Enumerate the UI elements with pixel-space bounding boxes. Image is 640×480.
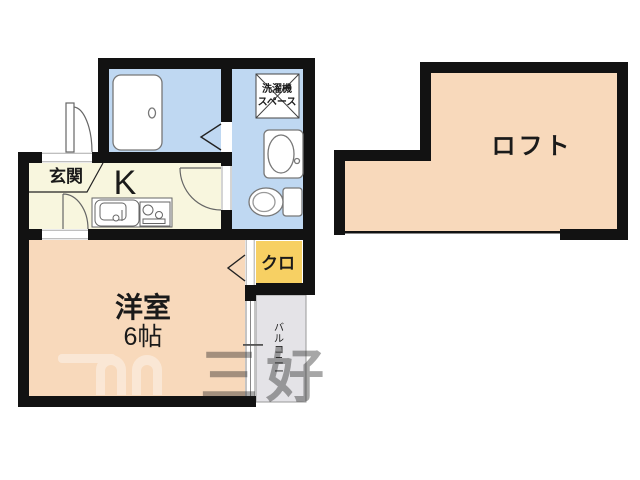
loft-wall-top xyxy=(420,62,628,73)
watermark-text: 三好 xyxy=(200,344,332,409)
wall-bath-washroom-lower xyxy=(221,210,232,229)
western-room-size-label: 6帖 xyxy=(124,323,163,351)
balcony-label: バルコニー xyxy=(274,322,284,378)
bathtub xyxy=(113,75,162,150)
loft-wall-notch xyxy=(334,150,431,161)
vanity-basin xyxy=(268,135,294,173)
entrance-door-leaf xyxy=(66,103,74,152)
wall-bath-washroom-mid xyxy=(221,152,232,166)
bathroom-door-gap xyxy=(221,122,232,152)
stove-burner-large xyxy=(143,205,153,215)
wall-window-stub xyxy=(245,285,256,301)
loft-edge-line xyxy=(340,231,562,234)
floor-plan-image: 三好 玄関 K 洗濯機 スペース クロ 洋室 6帖 ロフト バルコニー xyxy=(0,0,640,480)
vanity-sink xyxy=(264,130,303,178)
stove-burner-small xyxy=(156,212,163,219)
washer-label-line1: 洗濯機 xyxy=(262,82,292,95)
entrance-door-arc xyxy=(74,107,92,152)
toilet xyxy=(249,188,302,216)
floor-plan-svg: 三好 玄関 K 洗濯機 スペース クロ 洋室 6帖 ロフト バルコニー xyxy=(0,0,640,480)
wall-bath-bottom xyxy=(98,152,221,163)
wall-left-outer xyxy=(18,152,29,407)
kitchen-counter xyxy=(92,198,172,227)
wall-bath-washroom-upper xyxy=(221,58,232,122)
washroom-door-gap xyxy=(221,166,232,210)
wall-closet-bottom xyxy=(256,283,312,295)
wall-right-outer xyxy=(303,58,315,295)
vanity-faucet xyxy=(295,159,300,164)
sink-faucet xyxy=(113,215,119,221)
entrance-label: 玄関 xyxy=(49,166,83,186)
wall-bath-left xyxy=(98,58,109,163)
loft-wall-left-upper xyxy=(420,62,431,161)
loft-wall-right xyxy=(617,62,628,240)
washer-label-line2: スペース xyxy=(258,96,297,108)
loft-wall-left-lower xyxy=(334,150,345,235)
wall-top xyxy=(98,58,315,69)
western-room-label: 洋室 xyxy=(115,291,171,323)
bathtub-drain xyxy=(149,108,156,118)
loft-label: ロフト xyxy=(492,133,573,160)
washing-machine-space-box xyxy=(256,74,299,118)
toilet-tank xyxy=(283,188,302,216)
closet-label: クロ xyxy=(261,254,295,273)
kitchen-label: K xyxy=(114,164,137,202)
loft-wall-bottom-right xyxy=(560,229,628,240)
stove-grill xyxy=(143,219,165,224)
